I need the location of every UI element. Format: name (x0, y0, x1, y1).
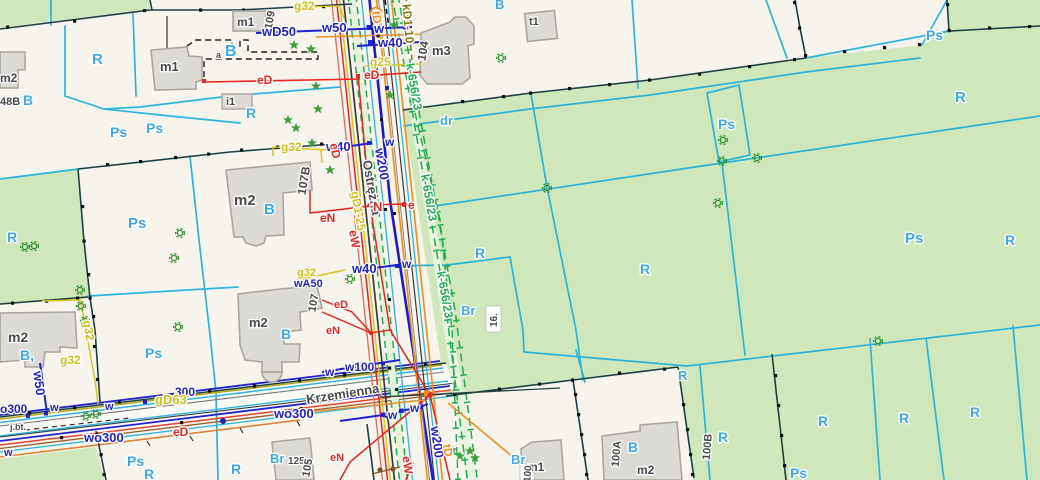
svg-text:w40: w40 (351, 261, 377, 276)
svg-text:Ps: Ps (146, 120, 163, 136)
svg-text:Ps: Ps (905, 230, 923, 247)
svg-text:16.: 16. (489, 313, 500, 327)
svg-text:w: w (3, 447, 13, 459)
svg-text:m2: m2 (249, 315, 268, 330)
svg-text:B: B (628, 439, 638, 455)
svg-text:R: R (7, 229, 17, 245)
svg-text:g32: g32 (60, 353, 81, 367)
svg-text:R: R (475, 245, 485, 261)
svg-text:B: B (281, 326, 291, 342)
svg-text:B,: B, (20, 347, 34, 363)
svg-text:m1: m1 (237, 15, 255, 29)
svg-text:m3: m3 (432, 43, 451, 58)
svg-text:Br: Br (270, 451, 284, 466)
svg-text:R: R (92, 51, 103, 68)
svg-text:R: R (955, 89, 966, 106)
svg-text:100B: 100B (701, 433, 715, 460)
svg-text:B: B (23, 92, 33, 108)
svg-text:tD: tD (369, 10, 384, 24)
svg-text:w: w (387, 408, 398, 422)
svg-text:e: e (408, 198, 415, 212)
svg-text:eD: eD (327, 142, 344, 160)
svg-text:w: w (324, 365, 335, 379)
svg-text:tD: tD (440, 443, 456, 458)
svg-text:m2: m2 (234, 192, 256, 209)
svg-text:w: w (104, 401, 114, 413)
svg-text:gD63: gD63 (155, 392, 187, 407)
svg-text:B: B (264, 201, 275, 218)
svg-text:eN: eN (326, 325, 340, 337)
svg-text:g32: g32 (294, 0, 315, 13)
svg-text:N: N (373, 199, 382, 214)
svg-text:g25: g25 (370, 55, 391, 69)
svg-text:Br: Br (461, 303, 475, 318)
svg-text:R: R (818, 413, 828, 429)
svg-text:eD: eD (257, 73, 273, 87)
svg-text:w100: w100 (344, 360, 375, 374)
svg-text:dr: dr (440, 113, 453, 128)
svg-text:w: w (49, 402, 59, 414)
svg-text:Ps: Ps (127, 453, 144, 469)
svg-text:t1: t1 (529, 16, 539, 28)
svg-text:Ps: Ps (128, 215, 146, 232)
svg-text:wo300: wo300 (273, 406, 314, 421)
svg-text:i1: i1 (226, 96, 235, 108)
svg-text:j.bt.: j.bt. (9, 422, 26, 432)
svg-text:eD: eD (334, 299, 348, 311)
svg-text:R: R (144, 466, 154, 480)
svg-text:R: R (718, 429, 728, 445)
svg-text:eD: eD (364, 68, 380, 82)
svg-text:w: w (409, 401, 420, 415)
svg-text:R: R (678, 368, 688, 383)
svg-text:wA50: wA50 (293, 278, 323, 290)
svg-text:100: 100 (522, 465, 534, 480)
svg-text:Ps: Ps (718, 116, 735, 132)
svg-text:Br: Br (511, 452, 525, 467)
svg-text:100A: 100A (610, 440, 624, 467)
svg-text:Ps: Ps (110, 124, 127, 140)
svg-text:w50: w50 (321, 20, 347, 35)
svg-text:R: R (1005, 232, 1015, 248)
svg-text:Ps: Ps (790, 465, 807, 480)
svg-text:o300: o300 (0, 402, 28, 416)
svg-text:m2: m2 (8, 329, 28, 345)
svg-text:B: B (225, 43, 237, 60)
svg-text:wo300: wo300 (83, 430, 124, 445)
svg-text:Ps: Ps (926, 27, 943, 43)
svg-text:eD: eD (173, 425, 189, 439)
svg-text:w50: w50 (30, 369, 48, 396)
svg-text:g32: g32 (281, 140, 302, 154)
svg-text:m1: m1 (160, 59, 179, 74)
svg-text:m2: m2 (637, 463, 655, 477)
svg-text:eN: eN (330, 452, 344, 464)
svg-text:Ps: Ps (145, 345, 162, 361)
svg-text:R: R (231, 461, 241, 477)
svg-text:R: R (246, 105, 256, 121)
svg-text:w40: w40 (377, 35, 403, 50)
svg-text:wD50: wD50 (261, 24, 296, 39)
svg-text:R: R (899, 410, 909, 426)
svg-text:R: R (970, 404, 980, 420)
svg-text:R: R (640, 261, 650, 277)
svg-text:eW: eW (399, 455, 415, 475)
svg-text:eN: eN (320, 211, 335, 225)
svg-text:w: w (401, 257, 412, 271)
svg-text:B: B (495, 0, 504, 12)
svg-text:m2: m2 (0, 71, 18, 85)
svg-text:48B: 48B (0, 96, 20, 108)
